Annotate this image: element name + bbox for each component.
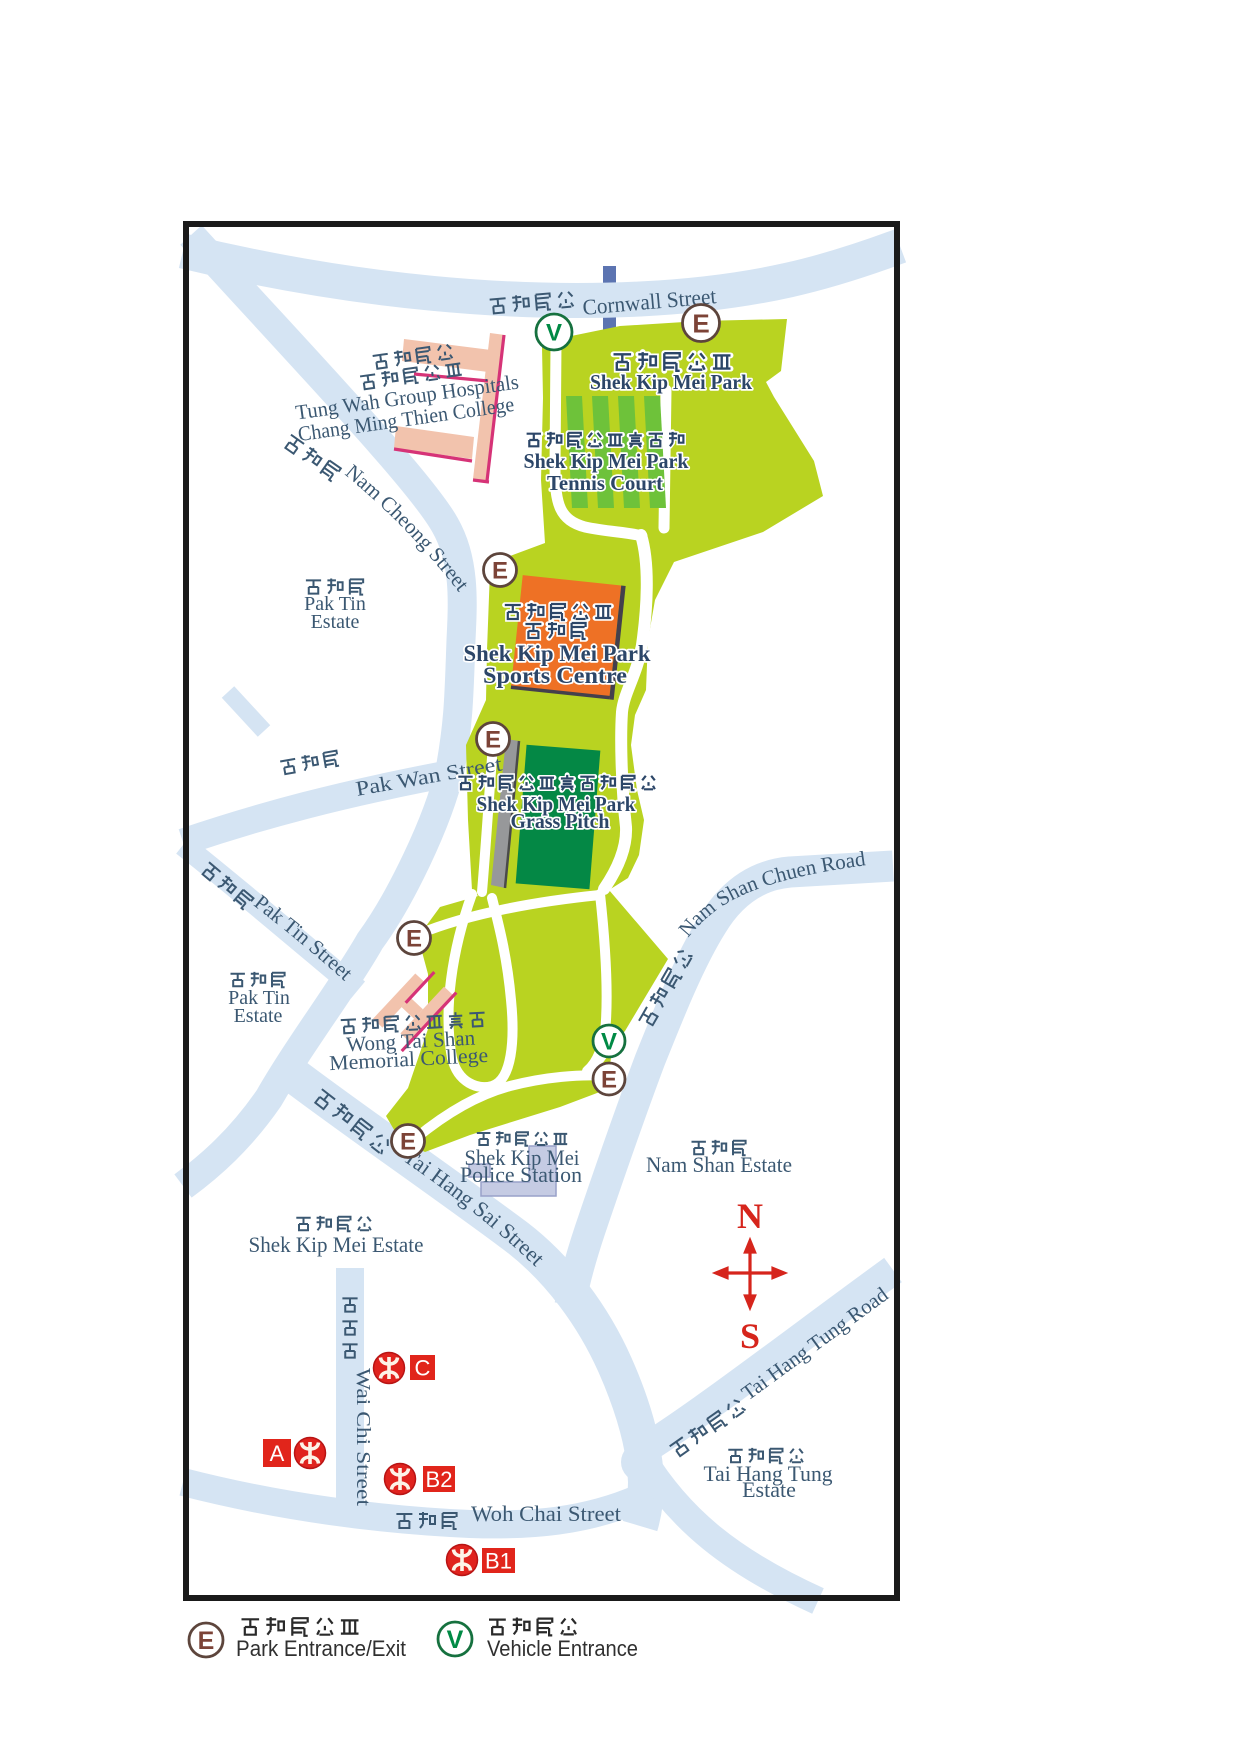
svg-text:B2: B2 xyxy=(426,1467,453,1492)
svg-text:E: E xyxy=(485,727,501,754)
svg-text:A: A xyxy=(270,1441,285,1466)
svg-text:E: E xyxy=(406,926,422,953)
svg-text:E: E xyxy=(492,558,508,585)
svg-text:Wai Chi Street: Wai Chi Street xyxy=(352,1368,374,1507)
svg-text:Police Station: Police Station xyxy=(460,1162,582,1187)
svg-text:Shek Kip Mei Park: Shek Kip Mei Park xyxy=(590,370,752,394)
svg-text:Grass Pitch: Grass Pitch xyxy=(511,809,610,833)
svg-text:B1: B1 xyxy=(485,1548,512,1573)
svg-text:V: V xyxy=(546,320,562,347)
svg-text:Vehicle Entrance: Vehicle Entrance xyxy=(487,1636,638,1661)
svg-text:V: V xyxy=(447,1626,464,1654)
svg-text:Sports Centre: Sports Centre xyxy=(483,663,627,688)
svg-text:E: E xyxy=(400,1129,416,1156)
svg-text:S: S xyxy=(740,1316,760,1356)
svg-text:E: E xyxy=(601,1067,617,1094)
svg-text:Shek Kip Mei Estate: Shek Kip Mei Estate xyxy=(249,1232,424,1257)
svg-text:V: V xyxy=(601,1029,617,1056)
svg-text:N: N xyxy=(737,1196,763,1236)
svg-text:Estate: Estate xyxy=(742,1477,796,1502)
svg-text:Estate: Estate xyxy=(311,611,360,633)
svg-text:Tennis Court: Tennis Court xyxy=(547,471,663,495)
svg-text:Woh Chai Street: Woh Chai Street xyxy=(471,1501,621,1526)
svg-text:Estate: Estate xyxy=(234,1005,283,1027)
svg-text:E: E xyxy=(198,1627,215,1655)
svg-text:C: C xyxy=(415,1355,431,1380)
svg-text:Park Entrance/Exit: Park Entrance/Exit xyxy=(236,1636,406,1661)
svg-text:E: E xyxy=(692,308,709,338)
svg-text:Shek Kip Mei Park: Shek Kip Mei Park xyxy=(524,449,689,473)
svg-text:Nam Shan Estate: Nam Shan Estate xyxy=(646,1152,792,1177)
